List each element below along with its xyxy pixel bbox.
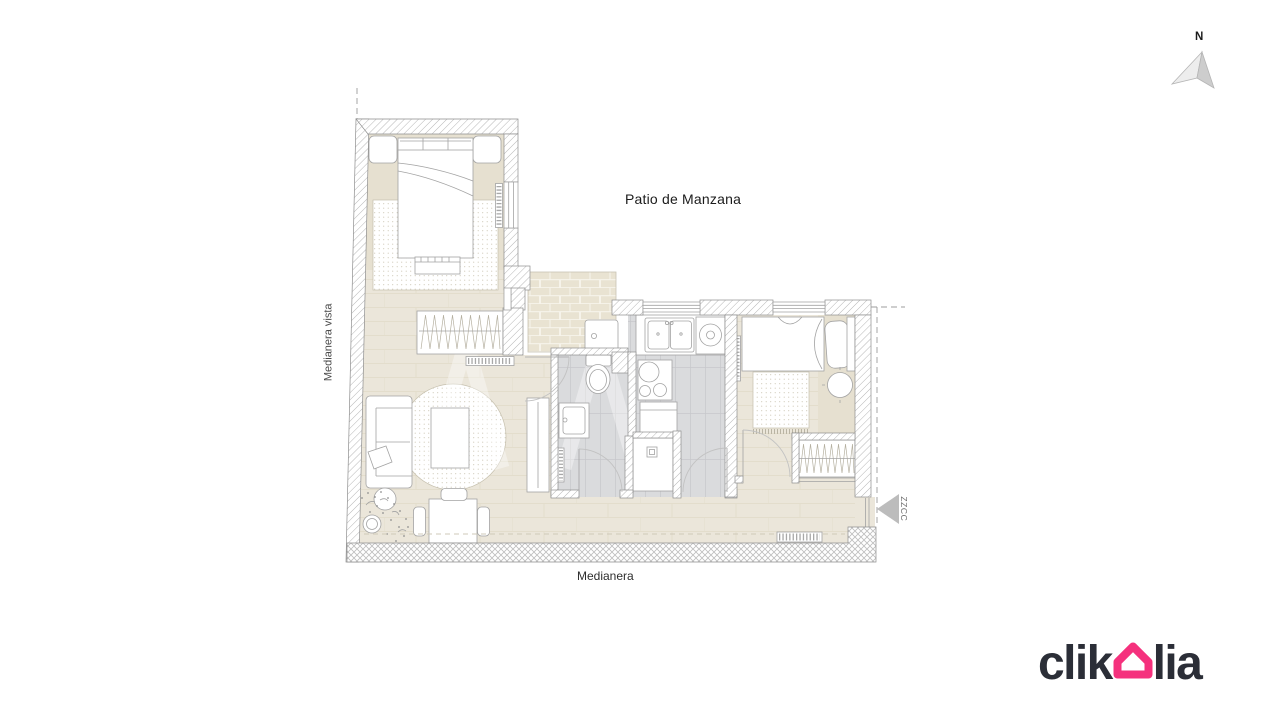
clikalia-logo: clik lia bbox=[1038, 640, 1201, 688]
chair-icon bbox=[478, 507, 490, 536]
washing-machine-icon bbox=[696, 317, 725, 354]
nightstand-icon bbox=[473, 136, 501, 163]
chair-icon bbox=[441, 489, 467, 501]
entry-arrow-icon bbox=[877, 494, 899, 524]
single-bed-icon bbox=[742, 317, 824, 371]
shower-tray-icon bbox=[633, 438, 673, 491]
north-arrow-icon bbox=[1172, 52, 1214, 88]
floor-plan bbox=[0, 0, 1280, 720]
rug-second-bedroom bbox=[753, 372, 809, 428]
patio-label: Patio de Manzana bbox=[625, 191, 741, 207]
logo-text-prefix: clik bbox=[1038, 640, 1112, 688]
radiator-icon bbox=[558, 448, 564, 482]
north-label: N bbox=[1195, 31, 1203, 44]
kitchen-column-icon bbox=[640, 402, 677, 436]
dining-table-icon bbox=[429, 499, 477, 543]
entry-zone-label: ZZCC bbox=[898, 490, 908, 528]
floor-entry bbox=[855, 497, 875, 527]
bottom-boundary-label: Medianera bbox=[577, 570, 634, 584]
bed-bench-icon bbox=[415, 257, 460, 274]
coffee-table-icon bbox=[431, 408, 469, 468]
double-bed-icon bbox=[398, 150, 473, 258]
nightstand-icon bbox=[369, 136, 397, 163]
side-table-icon bbox=[828, 373, 853, 398]
headboard-icon bbox=[847, 317, 855, 371]
wall-right bbox=[855, 315, 871, 497]
window-second-bedroom bbox=[773, 302, 825, 312]
chair-icon bbox=[414, 507, 426, 536]
window-main-bedroom bbox=[504, 182, 518, 228]
left-boundary-label: Medianera vista bbox=[323, 284, 336, 400]
logo-text-suffix: lia bbox=[1153, 640, 1202, 688]
radiator-icon bbox=[466, 357, 514, 366]
terrace-door bbox=[504, 288, 511, 310]
window-kitchen bbox=[643, 302, 700, 312]
double-sink-icon bbox=[645, 318, 694, 352]
page: Patio de Manzana Medianera vista Mediane… bbox=[0, 0, 1280, 720]
logo-house-icon bbox=[1113, 642, 1153, 679]
wall-top-main-bedroom bbox=[356, 119, 518, 134]
